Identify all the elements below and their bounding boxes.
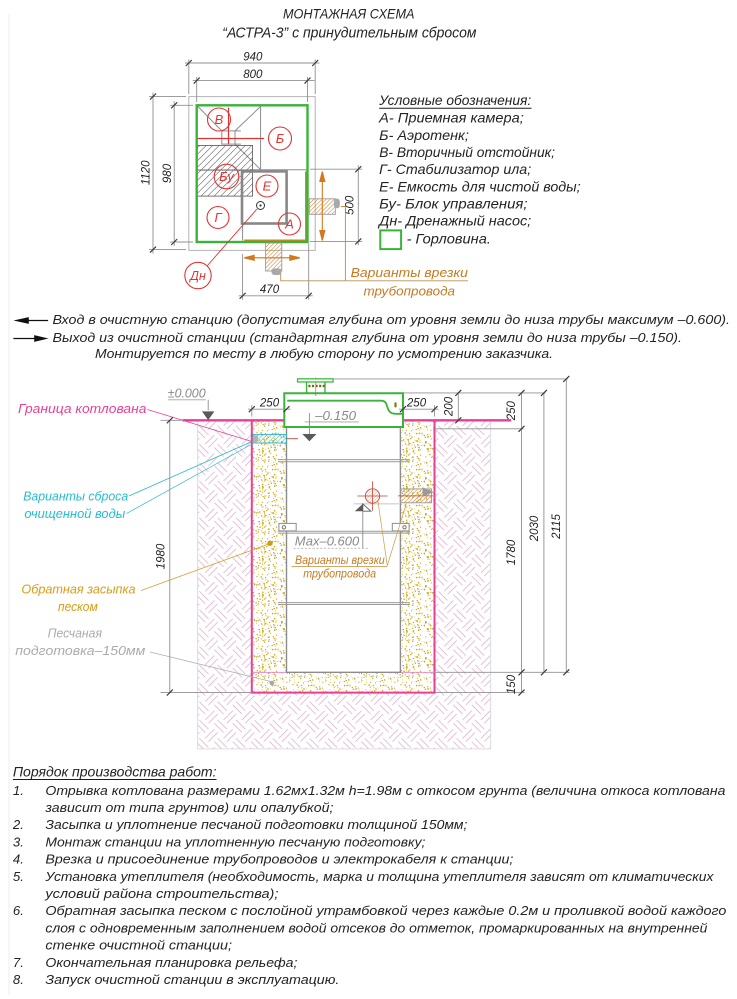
svg-text:1980: 1980 [156, 543, 168, 569]
svg-text:150: 150 [506, 674, 518, 694]
svg-text:Песчаная: Песчаная [48, 627, 103, 641]
svg-text:зависит от типа грунтов) или о: зависит от типа грунтов) или опалубкой; [44, 800, 333, 815]
svg-text:Обратная засыпка: Обратная засыпка [21, 583, 135, 597]
svg-text:Бу: Бу [219, 169, 235, 184]
svg-text:500: 500 [344, 195, 356, 215]
svg-text:Е: Е [263, 179, 272, 194]
svg-text:Обратная засыпка песком с посл: Обратная засыпка песком с послойной утра… [45, 903, 726, 918]
svg-text:- Горловина.: - Горловина. [407, 231, 491, 247]
svg-text:Установка утеплителя (необходи: Установка утеплителя (необходимость, мар… [44, 869, 713, 884]
svg-text:Б- Аэротенк;: Б- Аэротенк; [379, 127, 469, 143]
svg-text:трубопровода: трубопровода [364, 284, 456, 299]
svg-text:Граница котлована: Граница котлована [18, 402, 147, 416]
svg-text:Запуск очистной станции в эксп: Запуск очистной станции в эксплуатацию. [45, 972, 339, 987]
svg-text:Отрывка котлована размерами 1.: Отрывка котлована размерами 1.62мх1.32м … [45, 783, 725, 798]
svg-text:“АСТРА-3” с принудительным сбр: “АСТРА-3” с принудительным сбросом [222, 26, 476, 42]
svg-text:Е- Емкость для чистой воды;: Е- Емкость для чистой воды; [379, 179, 581, 195]
svg-text:Мах–0.600: Мах–0.600 [295, 534, 360, 549]
svg-text:Выход из очистной станции (ста: Выход из очистной станции (стандартная г… [53, 330, 683, 345]
svg-text:Монтаж станции на уплотненную: Монтаж станции на уплотненную песчаную п… [45, 834, 425, 849]
svg-text:условий района строительства);: условий района строительства); [44, 886, 278, 901]
svg-text:Засыпка и уплотнение песчаной: Засыпка и уплотнение песчаной подготовки… [45, 817, 467, 832]
svg-text:2030: 2030 [529, 515, 541, 542]
svg-text:Варианты врезки: Варианты врезки [295, 555, 385, 567]
svg-text:трубопровода: трубопровода [303, 569, 376, 581]
svg-text:Г- Стабилизатор ила;: Г- Стабилизатор ила; [379, 161, 531, 177]
svg-text:800: 800 [243, 69, 263, 81]
svg-text:песком: песком [58, 600, 98, 614]
svg-text:4.: 4. [13, 852, 24, 867]
svg-text:2.: 2. [12, 817, 24, 832]
svg-text:очищенной воды: очищенной воды [24, 507, 126, 521]
svg-text:980: 980 [162, 163, 174, 183]
svg-text:В- Вторичный отстойник;: В- Вторичный отстойник; [379, 144, 555, 160]
svg-text:Бу- Блок управления;: Бу- Блок управления; [379, 195, 527, 211]
svg-text:1120: 1120 [141, 160, 153, 185]
svg-text:А: А [284, 217, 294, 232]
svg-text:Б: Б [276, 131, 285, 146]
svg-text:В: В [215, 112, 224, 127]
svg-text:Дн- Дренажный насос;: Дн- Дренажный насос; [377, 212, 531, 228]
svg-text:Монтируется по месту в любую с: Монтируется по месту в любую сторону по … [95, 346, 553, 361]
svg-text:8.: 8. [13, 972, 24, 987]
svg-text:7.: 7. [13, 955, 24, 970]
svg-text:МОНТАЖНАЯ СХЕМА: МОНТАЖНАЯ СХЕМА [283, 6, 415, 22]
svg-text:1780: 1780 [506, 539, 518, 565]
svg-text:–0.150: –0.150 [314, 409, 356, 423]
svg-text:6.: 6. [13, 903, 24, 918]
svg-text:250: 250 [259, 398, 280, 410]
svg-text:200: 200 [444, 396, 456, 417]
svg-text:470: 470 [260, 284, 280, 296]
svg-text:Варианты врезки: Варианты врезки [351, 265, 468, 280]
svg-text:250: 250 [506, 401, 518, 422]
svg-text:подготовка–150мм: подготовка–150мм [15, 644, 145, 658]
svg-text:3.: 3. [13, 834, 24, 849]
svg-text:±0.000: ±0.000 [168, 387, 206, 401]
svg-text:Дн: Дн [188, 269, 206, 283]
svg-text:2115: 2115 [551, 514, 563, 540]
svg-text:Врезка и присоединение трубопр: Врезка и присоединение трубопроводов и э… [45, 852, 513, 867]
svg-text:слоя с одновременным заполнени: слоя с одновременным заполнением водой о… [45, 920, 708, 935]
svg-text:Г: Г [214, 210, 222, 225]
svg-text:Условные обозначения:: Условные обозначения: [378, 92, 531, 108]
svg-text:Варианты сброса: Варианты сброса [23, 490, 128, 504]
svg-text:250: 250 [406, 398, 427, 410]
svg-text:А- Приемная камера;: А- Приемная камера; [378, 110, 524, 126]
svg-text:1.: 1. [13, 783, 24, 798]
svg-text:стенке очистной станции;: стенке очистной станции; [45, 938, 232, 953]
svg-text:Порядок производства работ:: Порядок производства работ: [13, 765, 217, 780]
svg-text:5.: 5. [13, 869, 24, 884]
svg-text:940: 940 [243, 52, 263, 64]
svg-text:Окончательная планировка релье: Окончательная планировка рельефа; [45, 955, 297, 970]
svg-text:Вход в очистную станцию (допус: Вход в очистную станцию (допустимая глуб… [53, 312, 731, 327]
